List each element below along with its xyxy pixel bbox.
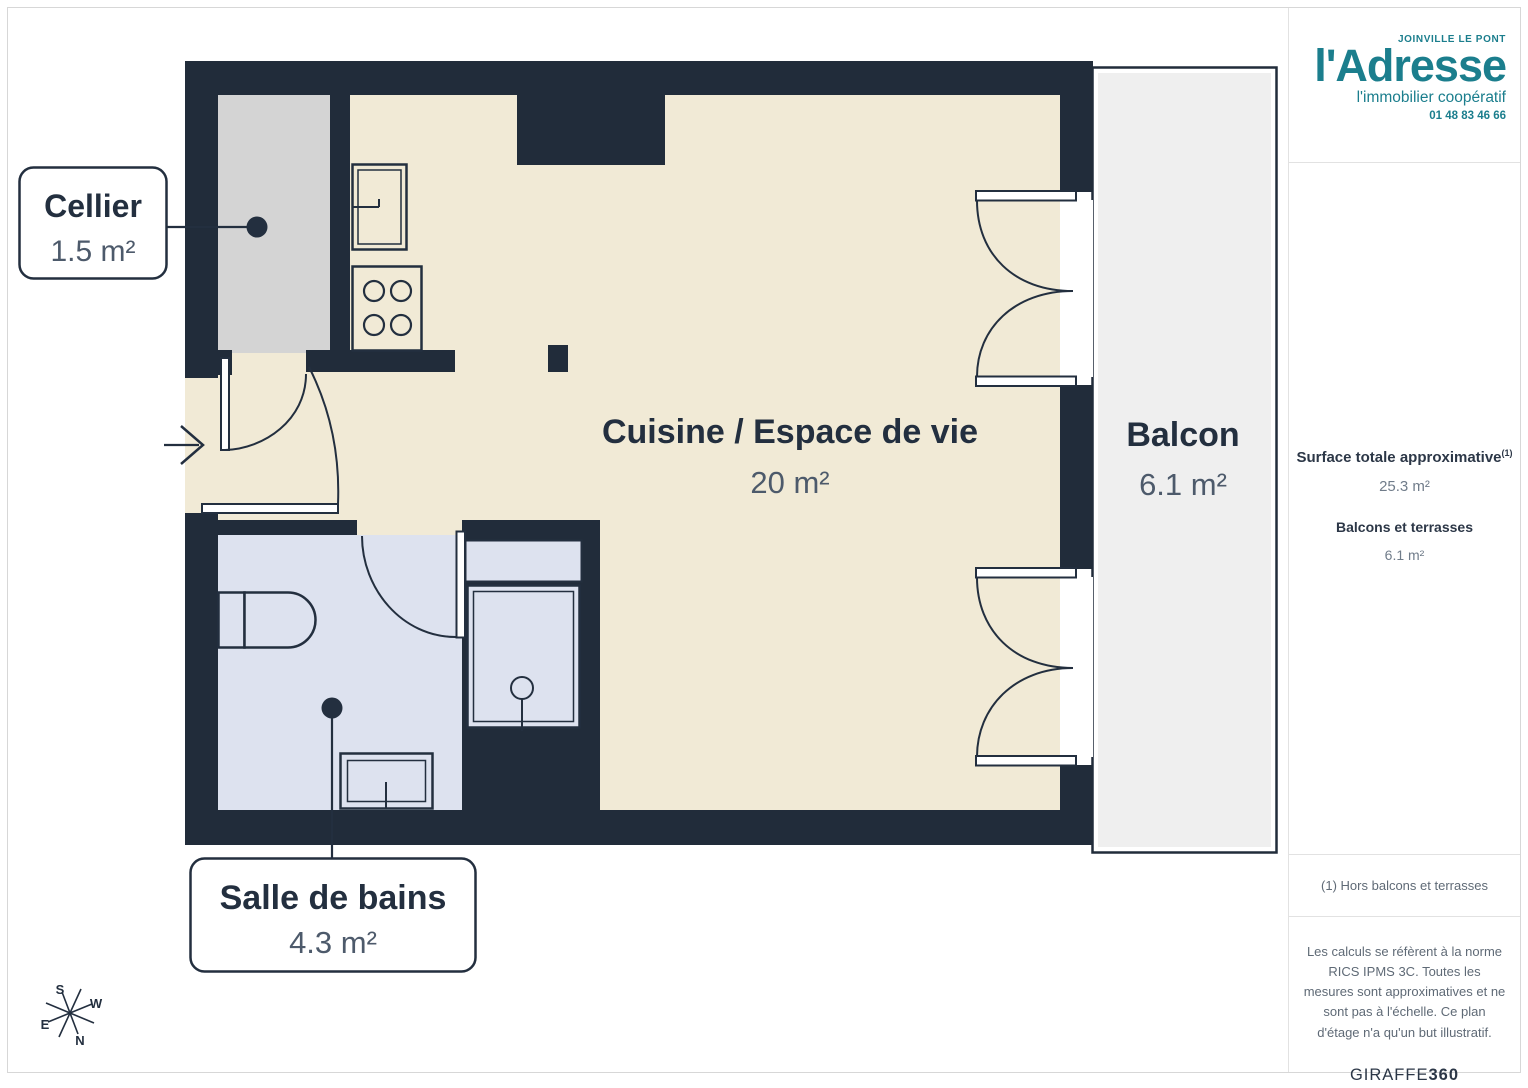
door-threshold <box>1076 577 1093 757</box>
label-dot <box>322 698 343 719</box>
compass-n: N <box>75 1033 84 1048</box>
legal-section: Les calculs se réfèrent à la norme RICS … <box>1289 917 1520 1088</box>
compass-s: S <box>56 982 65 997</box>
sidebar: JOINVILLE LE PONT l'Adresse l'immobilier… <box>1288 8 1520 1072</box>
balcony <box>1093 68 1277 853</box>
compass-e: E <box>41 1017 50 1032</box>
room-name-balcon: Balcon <box>1126 416 1239 454</box>
room-area-salle-de-bains: 4.3 m² <box>289 925 377 960</box>
agency-phone: 01 48 83 46 66 <box>1297 110 1506 122</box>
giraffe360-watermark: GIRAFFE360 <box>1302 1063 1507 1088</box>
surface-footnote: (1) Hors balcons et terrasses <box>1289 855 1520 917</box>
surface-total-note: (1) <box>1502 448 1513 458</box>
compass-w: W <box>90 996 103 1011</box>
legal-disclaimer: Les calculs se réfèrent à la norme RICS … <box>1302 942 1507 1043</box>
surface-total-value: 25.3 m² <box>1289 478 1520 495</box>
compass-icon: S W E N <box>41 982 103 1048</box>
room-name-salle-de-bains: Salle de bains <box>220 879 447 917</box>
agency-logo: JOINVILLE LE PONT l'Adresse l'immobilier… <box>1289 8 1520 163</box>
door-threshold <box>1076 200 1093 377</box>
agency-tagline: l'immobilier coopératif <box>1297 89 1506 107</box>
giraffe360-word: GIRAFFE <box>1350 1066 1429 1084</box>
giraffe360-number: 360 <box>1428 1066 1459 1084</box>
surface-total-label: Surface totale approximative(1) <box>1289 448 1520 466</box>
toilet-icon <box>219 593 316 648</box>
room-area-cellier: 1.5 m² <box>50 235 135 268</box>
label-dot <box>247 217 268 238</box>
agency-brand: l'Adresse <box>1297 43 1506 88</box>
floor-cellier <box>218 95 330 353</box>
surface-balcony-label: Balcons et terrasses <box>1289 519 1520 535</box>
room-name-cuisine: Cuisine / Espace de vie <box>602 413 978 451</box>
surface-total-label-text: Surface totale approximative <box>1296 449 1501 466</box>
shower-icon <box>466 541 582 732</box>
bath-sink-icon <box>341 754 433 809</box>
room-area-cuisine: 20 m² <box>750 465 829 500</box>
stove-icon <box>353 267 422 351</box>
surface-balcony-value: 6.1 m² <box>1289 547 1520 563</box>
surface-summary: Surface totale approximative(1) 25.3 m² … <box>1289 163 1520 855</box>
fridge-icon <box>352 165 407 250</box>
room-area-balcon: 6.1 m² <box>1139 467 1227 502</box>
room-name-cellier: Cellier <box>44 188 142 224</box>
